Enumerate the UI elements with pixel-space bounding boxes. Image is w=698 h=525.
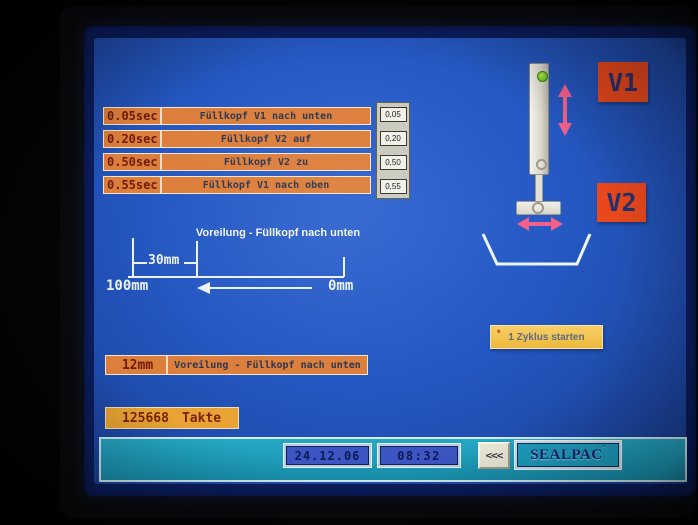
advance-row[interactable]: 12mm Voreilung - Füllkopf nach unten <box>105 355 368 375</box>
timer-value[interactable]: 0.20sec <box>104 131 162 147</box>
timer-row-1[interactable]: 0.05sec Füllkopf V1 nach unten <box>103 107 371 125</box>
cycle-start-label: 1 Zyklus starten <box>508 332 584 343</box>
asterisk-marker: * <box>497 328 501 338</box>
timer-label: Füllkopf V1 nach unten <box>162 108 370 124</box>
advance-label: Voreilung - Füllkopf nach unten <box>168 356 367 374</box>
brand-accent: ´ <box>602 444 606 456</box>
brand-logo: SEALPAC ´ <box>514 440 622 470</box>
setpoint-box: 0,20 <box>380 131 407 146</box>
cycle-start-button[interactable]: * 1 Zyklus starten <box>490 325 603 349</box>
valve-tag-v2: V2 <box>597 183 646 222</box>
sensor-circle-icon <box>536 159 547 170</box>
advance-value[interactable]: 12mm <box>106 356 168 374</box>
v1-motion-arrow-icon <box>556 84 574 136</box>
timer-label: Füllkopf V1 nach oben <box>162 177 370 193</box>
counter-value: 125668 <box>122 411 169 426</box>
right-scale-label: 0mm <box>328 278 353 294</box>
setpoint-panel: 0,05 0,20 0,50 0,55 <box>376 102 410 199</box>
fill-head-stem <box>535 174 543 203</box>
date-value: 24.12.06 <box>286 446 369 465</box>
timer-label: Füllkopf V2 zu <box>162 154 370 170</box>
foot-circle-icon <box>532 202 544 214</box>
time-value: 08:32 <box>380 446 458 465</box>
setpoint-box: 0,05 <box>380 107 407 122</box>
timer-label: Füllkopf V2 auf <box>162 131 370 147</box>
cycle-counter: 125668 Takte <box>105 407 239 429</box>
monitor-photo: 0.05sec Füllkopf V1 nach unten 0.20sec F… <box>0 0 698 525</box>
status-led-icon <box>537 71 548 82</box>
brand-text: SEALPAC <box>530 447 602 464</box>
back-button[interactable]: <<< <box>478 442 510 469</box>
counter-unit: Takte <box>182 411 221 426</box>
valve-tag-v1: V1 <box>598 62 648 102</box>
left-scale-label: 100mm <box>106 278 148 294</box>
segment-label: 30mm <box>148 253 179 268</box>
date-display: 24.12.06 <box>283 443 372 468</box>
time-display: 08:32 <box>377 443 461 468</box>
direction-arrow-icon <box>197 282 210 294</box>
timer-value[interactable]: 0.50sec <box>104 154 162 170</box>
setpoint-box: 0,55 <box>380 179 407 194</box>
timer-row-3[interactable]: 0.50sec Füllkopf V2 zu <box>103 153 371 171</box>
tray-outline <box>478 230 596 272</box>
timer-row-4[interactable]: 0.55sec Füllkopf V1 nach oben <box>103 176 371 194</box>
setpoint-box: 0,50 <box>380 155 407 170</box>
timer-value[interactable]: 0.55sec <box>104 177 162 193</box>
timer-row-2[interactable]: 0.20sec Füllkopf V2 auf <box>103 130 371 148</box>
timer-value[interactable]: 0.05sec <box>104 108 162 124</box>
